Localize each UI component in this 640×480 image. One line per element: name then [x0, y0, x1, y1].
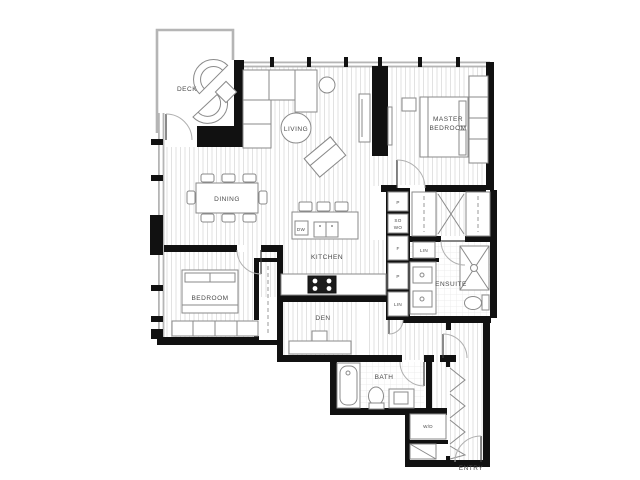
wardrobe-shelf [469, 76, 488, 97]
room-label-master-line2: BEDROOM [429, 125, 466, 132]
floor-plan-page: DECK LIVING MASTER BEDROOM DINING KITCHE… [0, 0, 640, 480]
cooktop [308, 276, 336, 293]
bedroom-north-wall [164, 245, 237, 252]
wardrobe-shelf [469, 97, 488, 118]
north-window-wall [240, 62, 490, 64]
east-wall-ensuite [490, 190, 497, 318]
dining-chair [187, 191, 195, 204]
fixture-label-oven-line1: SO [394, 218, 401, 223]
pillow [459, 130, 466, 155]
pillow [185, 273, 210, 282]
toilet [465, 297, 482, 310]
room-label-ensuite: ENSUITE [435, 281, 467, 288]
wall-oven-cabinet [388, 214, 408, 233]
fixture-label-linen-cabinet: LIN [394, 302, 402, 307]
kitchen-den-wall [277, 295, 386, 302]
bar-stool [335, 202, 348, 211]
dining-chair [201, 214, 214, 222]
room-label-deck: DECK [177, 86, 197, 93]
fixture-label-pantry-lower: P [396, 274, 399, 279]
living-master-wall [372, 66, 388, 156]
master-tv [388, 107, 392, 145]
room-label-kitchen: KITCHEN [311, 254, 343, 261]
dining-chair [222, 214, 235, 222]
desk [289, 341, 351, 354]
bedroom-south-wall [157, 337, 258, 345]
wardrobe-shelf [469, 118, 488, 139]
fixture-label-pantry-upper: P [396, 200, 399, 205]
sink [413, 267, 432, 283]
room-label-bath: BATH [375, 374, 394, 381]
dining-chair [259, 191, 267, 204]
dining-chair [243, 174, 256, 182]
tall-cabinets [388, 192, 408, 316]
dining-chair [243, 214, 256, 222]
room-label-dining: DINING [214, 196, 240, 203]
tv-console [359, 94, 370, 142]
dining-chair [222, 174, 235, 182]
east-wall-entry [483, 318, 490, 467]
floor-plan-drawing: DECK LIVING MASTER BEDROOM DINING KITCHE… [0, 0, 640, 480]
fixture-label-fridge: F [396, 246, 399, 251]
fixture-label-oven-line2: WO [394, 225, 403, 230]
bar-stool [299, 202, 312, 211]
nightstand [402, 98, 416, 111]
den-bath-wall [277, 355, 402, 362]
wardrobe-shelf [469, 139, 488, 163]
dining-chair [201, 174, 214, 182]
room-label-living: LIVING [284, 126, 308, 133]
monitor [312, 331, 327, 341]
room-label-entry: ENTRY [459, 465, 484, 472]
side-table [319, 77, 335, 93]
bath-west-wall [330, 362, 337, 408]
pillow [210, 273, 235, 282]
sink [413, 291, 432, 307]
room-label-den: DEN [315, 315, 330, 322]
fixture-label-washer-dryer: W/D [423, 424, 433, 429]
toilet [369, 387, 384, 405]
room-label-bedroom: BEDROOM [191, 295, 228, 302]
room-label-master-line1: MASTER [433, 116, 463, 123]
shower-drain [471, 265, 478, 272]
sink [394, 392, 408, 404]
bar-stool [317, 202, 330, 211]
fixture-label-linen-hall: LIN [420, 248, 428, 253]
fixture-label-dw: DW [297, 227, 306, 232]
